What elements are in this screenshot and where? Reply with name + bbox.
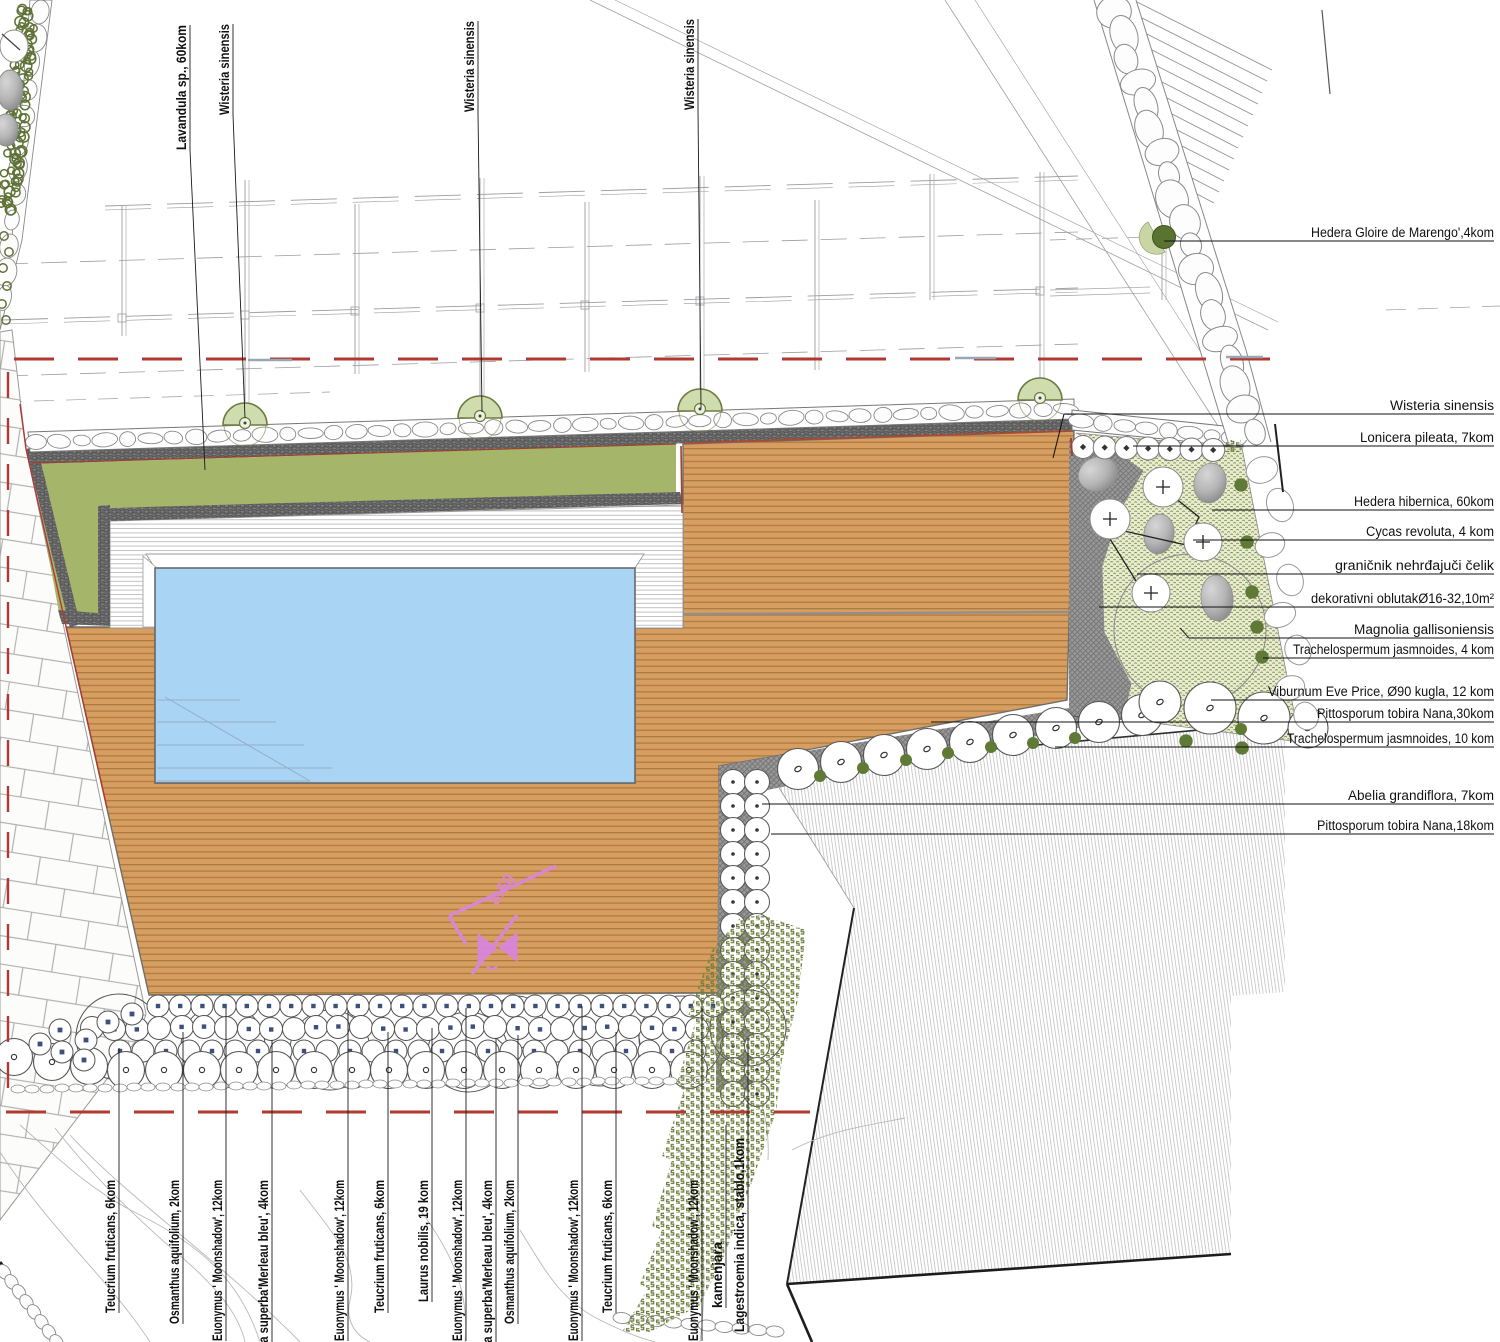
svg-text:dekorativni oblutakØ16-32,10m²: dekorativni oblutakØ16-32,10m² bbox=[1311, 591, 1494, 606]
svg-text:Teucrium fruticans, 6kom: Teucrium fruticans, 6kom bbox=[372, 1180, 387, 1313]
svg-text:Lavandula sp., 60kom: Lavandula sp., 60kom bbox=[174, 25, 189, 150]
svg-text:kamenjara: kamenjara bbox=[710, 1242, 725, 1308]
svg-text:Lonicera pileata, 7kom: Lonicera pileata, 7kom bbox=[1360, 430, 1494, 445]
svg-text:Osmanthus aquifolium, 2kom: Osmanthus aquifolium, 2kom bbox=[167, 1180, 182, 1324]
svg-text:Euonymus ' Moonshadow', 12kom: Euonymus ' Moonshadow', 12kom bbox=[450, 1180, 465, 1341]
svg-text:Hedera hibernica, 60kom: Hedera hibernica, 60kom bbox=[1354, 494, 1494, 509]
svg-text:Abelia grandiflora, 7kom: Abelia grandiflora, 7kom bbox=[1348, 788, 1494, 803]
svg-text:Hedera Gloire de Marengo',4kom: Hedera Gloire de Marengo',4kom bbox=[1311, 225, 1494, 240]
svg-text:Trachelospermum jasmnoides, 10: Trachelospermum jasmnoides, 10 kom bbox=[1287, 731, 1494, 746]
svg-text:Laurus nobilis, 19 kom: Laurus nobilis, 19 kom bbox=[416, 1180, 431, 1302]
svg-text:Wisteria sinensis: Wisteria sinensis bbox=[462, 21, 477, 112]
svg-text:Euonymus ' Moonshadow', 12kom: Euonymus ' Moonshadow', 12kom bbox=[566, 1180, 581, 1341]
svg-text:Cycas revoluta, 4 kom: Cycas revoluta, 4 kom bbox=[1366, 524, 1494, 539]
svg-text:Magnolia gallisoniensis: Magnolia gallisoniensis bbox=[1354, 622, 1494, 637]
svg-text:Trachelospermum jasmnoides, 4: Trachelospermum jasmnoides, 4 kom bbox=[1293, 642, 1494, 657]
svg-text:Viburnum Eve Price, Ø90 kugla,: Viburnum Eve Price, Ø90 kugla, 12 kom bbox=[1268, 684, 1494, 699]
svg-text:Osmanthus aquifolium, 2kom: Osmanthus aquifolium, 2kom bbox=[502, 1180, 517, 1324]
svg-text:graničnik nehrđajuči čelik: graničnik nehrđajuči čelik bbox=[1335, 558, 1494, 573]
svg-text:Euonymus ' Moonshadow', 12kom: Euonymus ' Moonshadow', 12kom bbox=[686, 1180, 701, 1341]
svg-text:Teucrium fruticans, 6kom: Teucrium fruticans, 6kom bbox=[103, 1180, 118, 1313]
svg-text:Wisteria sinensis: Wisteria sinensis bbox=[682, 19, 697, 110]
svg-text:Euonymus ' Moonshadow', 12kom: Euonymus ' Moonshadow', 12kom bbox=[332, 1180, 347, 1341]
svg-text:Pittosporum tobira Nana,30kom: Pittosporum tobira Nana,30kom bbox=[1317, 706, 1494, 721]
svg-text:Wisteria sinensis: Wisteria sinensis bbox=[1390, 398, 1494, 413]
svg-text:Salvia superba'Merleau bleu',: Salvia superba'Merleau bleu', 4kom bbox=[480, 1180, 495, 1342]
svg-text:Teucrium fruticans, 6kom: Teucrium fruticans, 6kom bbox=[600, 1180, 615, 1313]
svg-text:Wisteria sinensis: Wisteria sinensis bbox=[217, 24, 232, 115]
svg-text:Lagestroemia indica, stablo,1k: Lagestroemia indica, stablo,1kom bbox=[732, 1138, 747, 1332]
svg-text:Salvia superba'Merleau bleu',: Salvia superba'Merleau bleu', 4kom bbox=[256, 1180, 271, 1342]
svg-text:Euonymus ' Moonshadow', 12kom: Euonymus ' Moonshadow', 12kom bbox=[210, 1180, 225, 1341]
svg-text:Pittosporum tobira Nana,18kom: Pittosporum tobira Nana,18kom bbox=[1317, 818, 1494, 833]
